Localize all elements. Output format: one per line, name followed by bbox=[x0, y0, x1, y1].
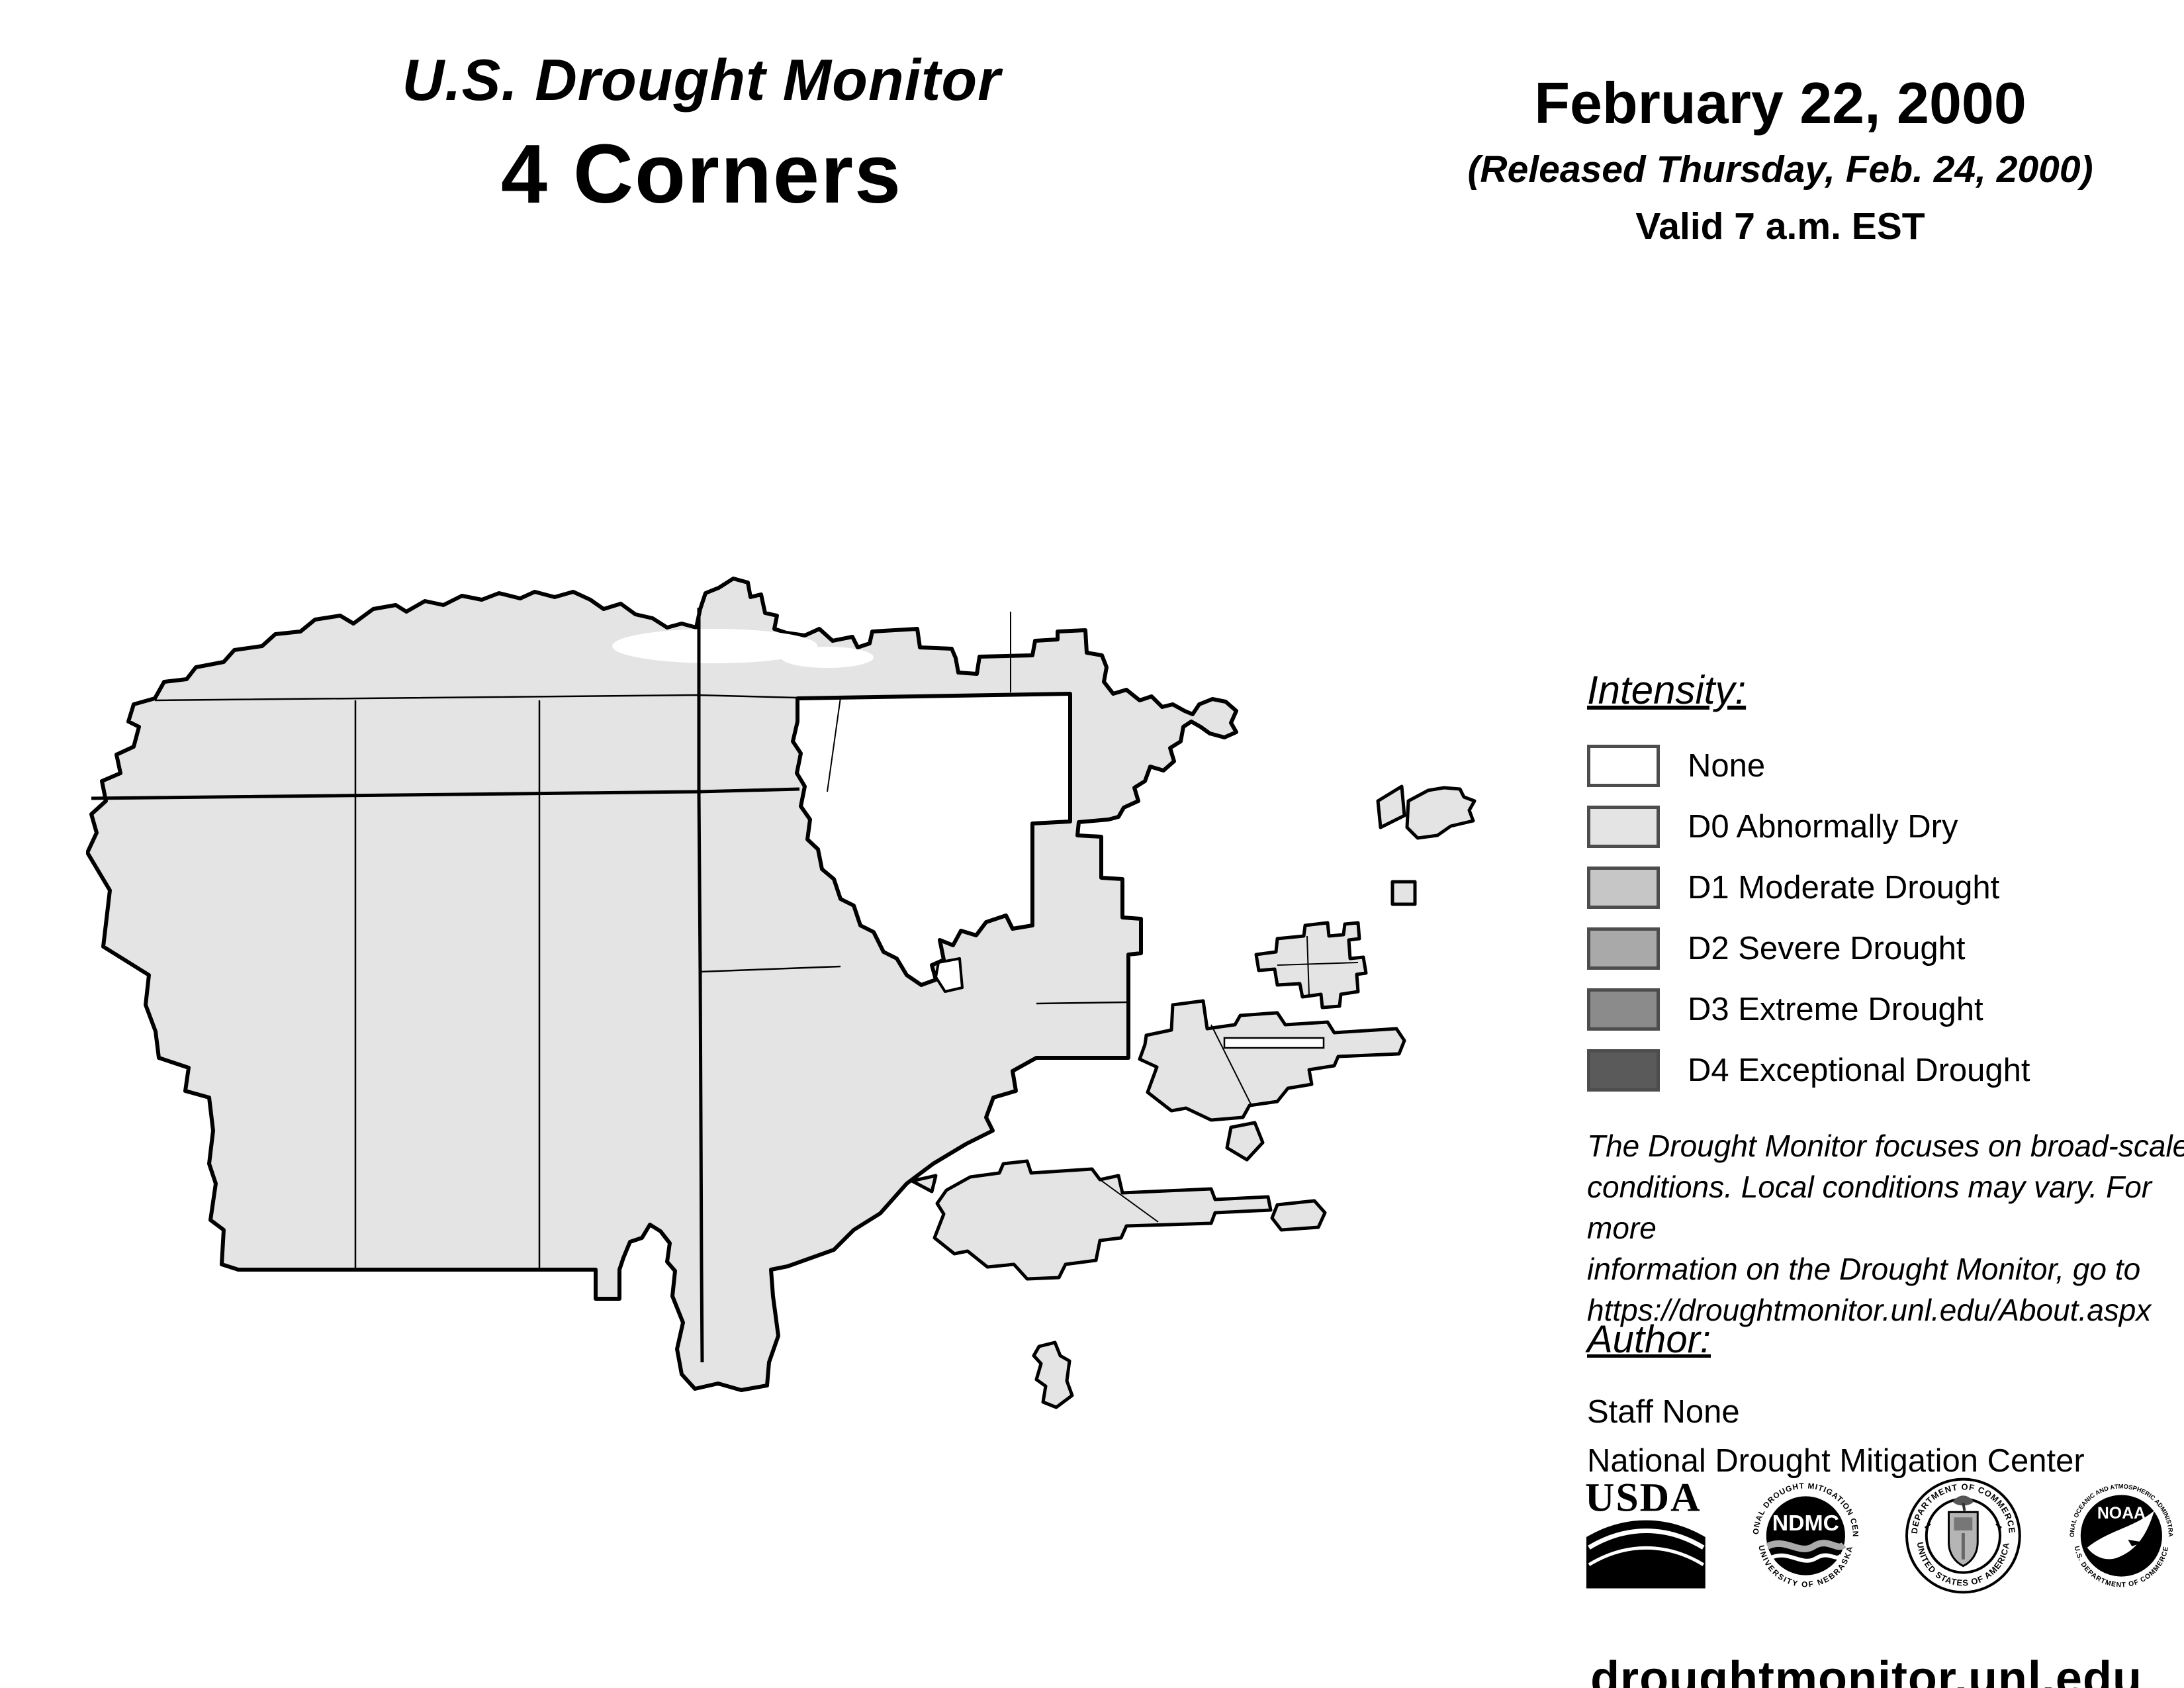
map-fill-fade-arc-east bbox=[781, 647, 874, 668]
map-d0-patch-cluster bbox=[1256, 923, 1366, 1008]
legend-label: D4 Exceptional Drought bbox=[1688, 1052, 2030, 1089]
date-block: February 22, 2000 (Released Thursday, Fe… bbox=[1423, 70, 2138, 248]
map-date: February 22, 2000 bbox=[1423, 70, 2138, 137]
ndmc-wordmark: NDMC bbox=[1772, 1511, 1839, 1536]
logo-row: USDA NATIONAL DROUGHT MITIGATION CENTER … bbox=[1585, 1476, 2181, 1595]
legend-swatch-d4 bbox=[1587, 1049, 1660, 1092]
map-d0-patch-square bbox=[1392, 882, 1415, 904]
disclaimer: The Drought Monitor focuses on broad-sca… bbox=[1587, 1125, 2184, 1331]
county-line-colorado bbox=[827, 698, 841, 792]
doc-eagle-body bbox=[1964, 1503, 1965, 1511]
release-date: (Released Thursday, Feb. 24, 2000) bbox=[1423, 148, 2138, 191]
map-d0-patch-south-end bbox=[1272, 1201, 1325, 1230]
legend-row-d0: D0 Abnormally Dry bbox=[1587, 806, 2183, 848]
legend-label: D3 Extreme Drought bbox=[1688, 991, 1983, 1028]
author-heading: Author: bbox=[1587, 1317, 2184, 1362]
drought-map bbox=[86, 568, 1489, 1489]
ndmc-logo-icon: NATIONAL DROUGHT MITIGATION CENTER UNIVE… bbox=[1747, 1476, 1865, 1595]
noaa-wordmark: NOAA bbox=[2097, 1505, 2146, 1523]
author-name: Staff None bbox=[1587, 1393, 2184, 1430]
title-block: U.S. Drought Monitor 4 Corners bbox=[278, 46, 1125, 222]
drought-monitor-page: U.S. Drought Monitor 4 Corners February … bbox=[0, 0, 2184, 1688]
drought-map-svg bbox=[86, 568, 1489, 1489]
map-white-slit bbox=[1224, 1038, 1324, 1048]
legend-row-d4: D4 Exceptional Drought bbox=[1587, 1049, 2183, 1092]
legend-swatch-d2 bbox=[1587, 927, 1660, 970]
legend-label: D1 Moderate Drought bbox=[1688, 869, 1999, 906]
legend-row-d1: D1 Moderate Drought bbox=[1587, 867, 2183, 909]
map-d0-patch-southeast bbox=[1140, 1001, 1404, 1120]
legend-label: None bbox=[1688, 747, 1765, 784]
legend-swatch-d0 bbox=[1587, 806, 1660, 848]
region-title: 4 Corners bbox=[278, 126, 1125, 222]
usda-wordmark: USDA bbox=[1585, 1476, 1702, 1520]
legend-row-d3: D3 Extreme Drought bbox=[1587, 988, 2183, 1031]
disclaimer-line: conditions. Local conditions may vary. F… bbox=[1587, 1166, 2184, 1248]
legend-swatch-none bbox=[1587, 745, 1660, 787]
legend-row-none: None bbox=[1587, 745, 2183, 787]
disclaimer-line: information on the Drought Monitor, go t… bbox=[1587, 1248, 2184, 1289]
map-d0-patch-south bbox=[934, 1161, 1271, 1279]
map-d0-patch-pentagon bbox=[1227, 1123, 1263, 1160]
author-block: Author: Staff None National Drought Miti… bbox=[1587, 1317, 2184, 1479]
map-d0-patch-bottom-blob bbox=[1034, 1342, 1072, 1407]
doc-shield-ship bbox=[1954, 1517, 1973, 1530]
noaa-logo-icon: NATIONAL OCEANIC AND ATMOSPHERIC ADMINIS… bbox=[2062, 1476, 2181, 1595]
legend-label: D2 Severe Drought bbox=[1688, 930, 1965, 967]
disclaimer-line: The Drought Monitor focuses on broad-sca… bbox=[1587, 1125, 2184, 1166]
map-d0-patch-east-blob bbox=[1407, 788, 1475, 838]
legend-swatch-d1 bbox=[1587, 867, 1660, 909]
page-title: U.S. Drought Monitor bbox=[278, 46, 1125, 114]
legend-label: D0 Abnormally Dry bbox=[1688, 808, 1958, 845]
legend-heading: Intensity: bbox=[1587, 667, 2183, 713]
legend-row-d2: D2 Severe Drought bbox=[1587, 927, 2183, 970]
footer-url: droughtmonitor.unl.edu bbox=[1549, 1652, 2184, 1688]
legend-swatch-d3 bbox=[1587, 988, 1660, 1031]
usda-logo-icon: USDA bbox=[1585, 1476, 1707, 1595]
author-organization: National Drought Mitigation Center bbox=[1587, 1442, 2184, 1479]
legend: Intensity: None D0 Abnormally Dry D1 Mod… bbox=[1587, 667, 2183, 1110]
map-d0-patch-triangle bbox=[1378, 786, 1404, 827]
commerce-seal-icon: DEPARTMENT OF COMMERCE UNITED STATES OF … bbox=[1904, 1476, 2023, 1595]
valid-time: Valid 7 a.m. EST bbox=[1423, 205, 2138, 248]
